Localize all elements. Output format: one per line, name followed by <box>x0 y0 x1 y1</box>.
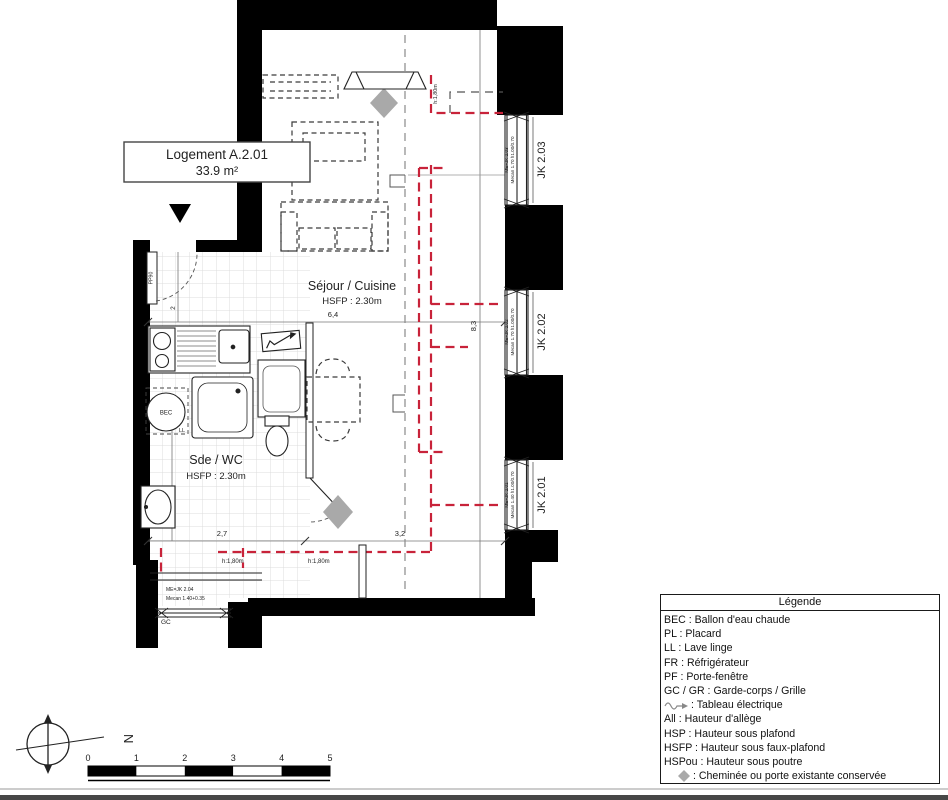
legend-text: PL : Placard <box>664 627 721 641</box>
window-note: ME=JK 2.02 <box>504 319 509 345</box>
legend-item-hspou: HSPou : Hauteur sous poutre <box>664 755 936 769</box>
legend-text: GC / GR : Garde-corps / Grille <box>664 684 806 698</box>
room-height-sde: HSFP : 2.30m <box>186 471 246 482</box>
legend-text: HSP : Hauteur sous plafond <box>664 727 795 741</box>
window-note: ME=JK 2.01 <box>504 482 509 508</box>
cheminee-diamond-icon <box>678 770 690 782</box>
dining-table <box>307 377 360 422</box>
scale-tick: 0 <box>85 753 90 763</box>
compass: N <box>16 714 136 774</box>
legend-item-pf: PF : Porte-fenêtre <box>664 670 936 684</box>
legend-text: BEC : Ballon d'eau chaude <box>664 613 790 627</box>
partitions <box>306 323 366 598</box>
window-label-jk203: JK 2.03 <box>536 141 548 178</box>
balcony-note-1: ME=JK 2.04 <box>166 587 194 593</box>
window-label-jk201: JK 2.01 <box>536 476 548 513</box>
interior-steps <box>390 175 505 412</box>
chair-bottom <box>316 426 350 441</box>
scale-tick: 2 <box>182 753 187 763</box>
window-label-jk202: JK 2.02 <box>536 313 548 350</box>
legend-text: HSFP : Hauteur sous faux-plafond <box>664 741 825 755</box>
dim-32-label: 3,2 <box>395 529 405 538</box>
fireplace <box>344 72 426 89</box>
room-height-sejour: HSFP : 2.30m <box>322 296 382 307</box>
legend-item-pl: PL : Placard <box>664 627 936 641</box>
unit-label: Logement A.2.01 33.9 m² <box>124 142 310 223</box>
floor-plan-page: 6,4 8,3 2,7 3,2 3,8 2 h:1,80m h:1,80m h:… <box>0 0 948 800</box>
toilet-tank <box>265 416 289 426</box>
radiator <box>263 75 338 98</box>
legend-item-cheminee: : Cheminée ou porte existante conservée <box>664 769 936 783</box>
unit-area: 33.9 m² <box>196 164 238 178</box>
dim-width-label: 6,4 <box>328 310 338 319</box>
window-note: ME=JK 2.03 <box>504 147 509 173</box>
balcony-note-2: Mecan 1.40+0.35 <box>166 596 205 602</box>
window-note: Mecan 1.40 h1.00/0.70 <box>510 471 515 518</box>
gc-label: GC <box>161 619 171 626</box>
window-note: Mecan 1.70 h1.00/0.70 <box>510 136 515 183</box>
north-label: N <box>121 734 136 743</box>
entry-door-label: PP90 <box>149 272 155 285</box>
legend-item-tableau: : Tableau électrique <box>664 698 936 712</box>
page-frame <box>0 789 948 800</box>
unit-pointer-triangle <box>169 204 191 223</box>
tableau-electrique-icon <box>261 330 300 351</box>
scale-tick: 1 <box>134 753 139 763</box>
cheminee-marker-icon <box>370 88 398 118</box>
toilet-bowl <box>266 426 288 456</box>
legend-rows: BEC : Ballon d'eau chaude PL : Placard L… <box>661 611 939 783</box>
height-label-vertical: h:1,80m <box>433 84 439 104</box>
legend-text: PF : Porte-fenêtre <box>664 670 748 684</box>
legend-item-hsp: HSP : Hauteur sous plafond <box>664 727 936 741</box>
scale-bar: 0 1 2 3 4 5 <box>85 753 332 781</box>
legend-item-hsfp: HSFP : Hauteur sous faux-plafond <box>664 741 936 755</box>
legend-box: Légende BEC : Ballon d'eau chaude PL : P… <box>660 594 940 784</box>
bec-label: BEC <box>160 411 173 417</box>
legend-item-ll: LL : Lave linge <box>664 641 936 655</box>
scale-tick-labels: 0 1 2 3 4 5 <box>85 753 332 763</box>
existing-door-marker-icon <box>323 495 353 529</box>
dim-height-label: 8,3 <box>469 321 478 331</box>
legend-item-bec: BEC : Ballon d'eau chaude <box>664 613 936 627</box>
bed-pillow <box>303 133 365 161</box>
dim-27-label: 2,7 <box>217 529 227 538</box>
chair-top <box>316 359 350 374</box>
tableau-electrique-arrow-icon <box>664 701 688 710</box>
dim-2-label: 2 <box>170 306 177 310</box>
legend-item-gc: GC / GR : Garde-corps / Grille <box>664 684 936 698</box>
unit-name: Logement A.2.01 <box>166 147 268 162</box>
north-needle <box>16 737 104 750</box>
legend-item-all: All : Hauteur d'allège <box>664 712 936 726</box>
legend-text: HSPou : Hauteur sous poutre <box>664 755 802 769</box>
height-label-bottom-left: h:1,80m <box>222 559 244 565</box>
window-note: Mecan 1.70 h1.00/0.70 <box>510 308 515 355</box>
legend-item-fr: FR : Réfrigérateur <box>664 656 936 670</box>
legend-text: All : Hauteur d'allège <box>664 712 761 726</box>
ll-label: LL <box>179 428 185 434</box>
scale-tick: 4 <box>279 753 284 763</box>
legend-text: : Tableau électrique <box>691 698 783 712</box>
legend-title: Légende <box>661 595 939 611</box>
room-label-sde: Sde / WC <box>189 453 243 467</box>
height-label-bottom-right: h:1,80m <box>308 559 330 565</box>
room-label-sejour: Séjour / Cuisine <box>308 279 396 293</box>
legend-text: : Cheminée ou porte existante conservée <box>693 769 886 783</box>
scale-tick: 3 <box>231 753 236 763</box>
legend-text: FR : Réfrigérateur <box>664 656 749 670</box>
legend-text: LL : Lave linge <box>664 641 733 655</box>
scale-tick: 5 <box>327 753 332 763</box>
